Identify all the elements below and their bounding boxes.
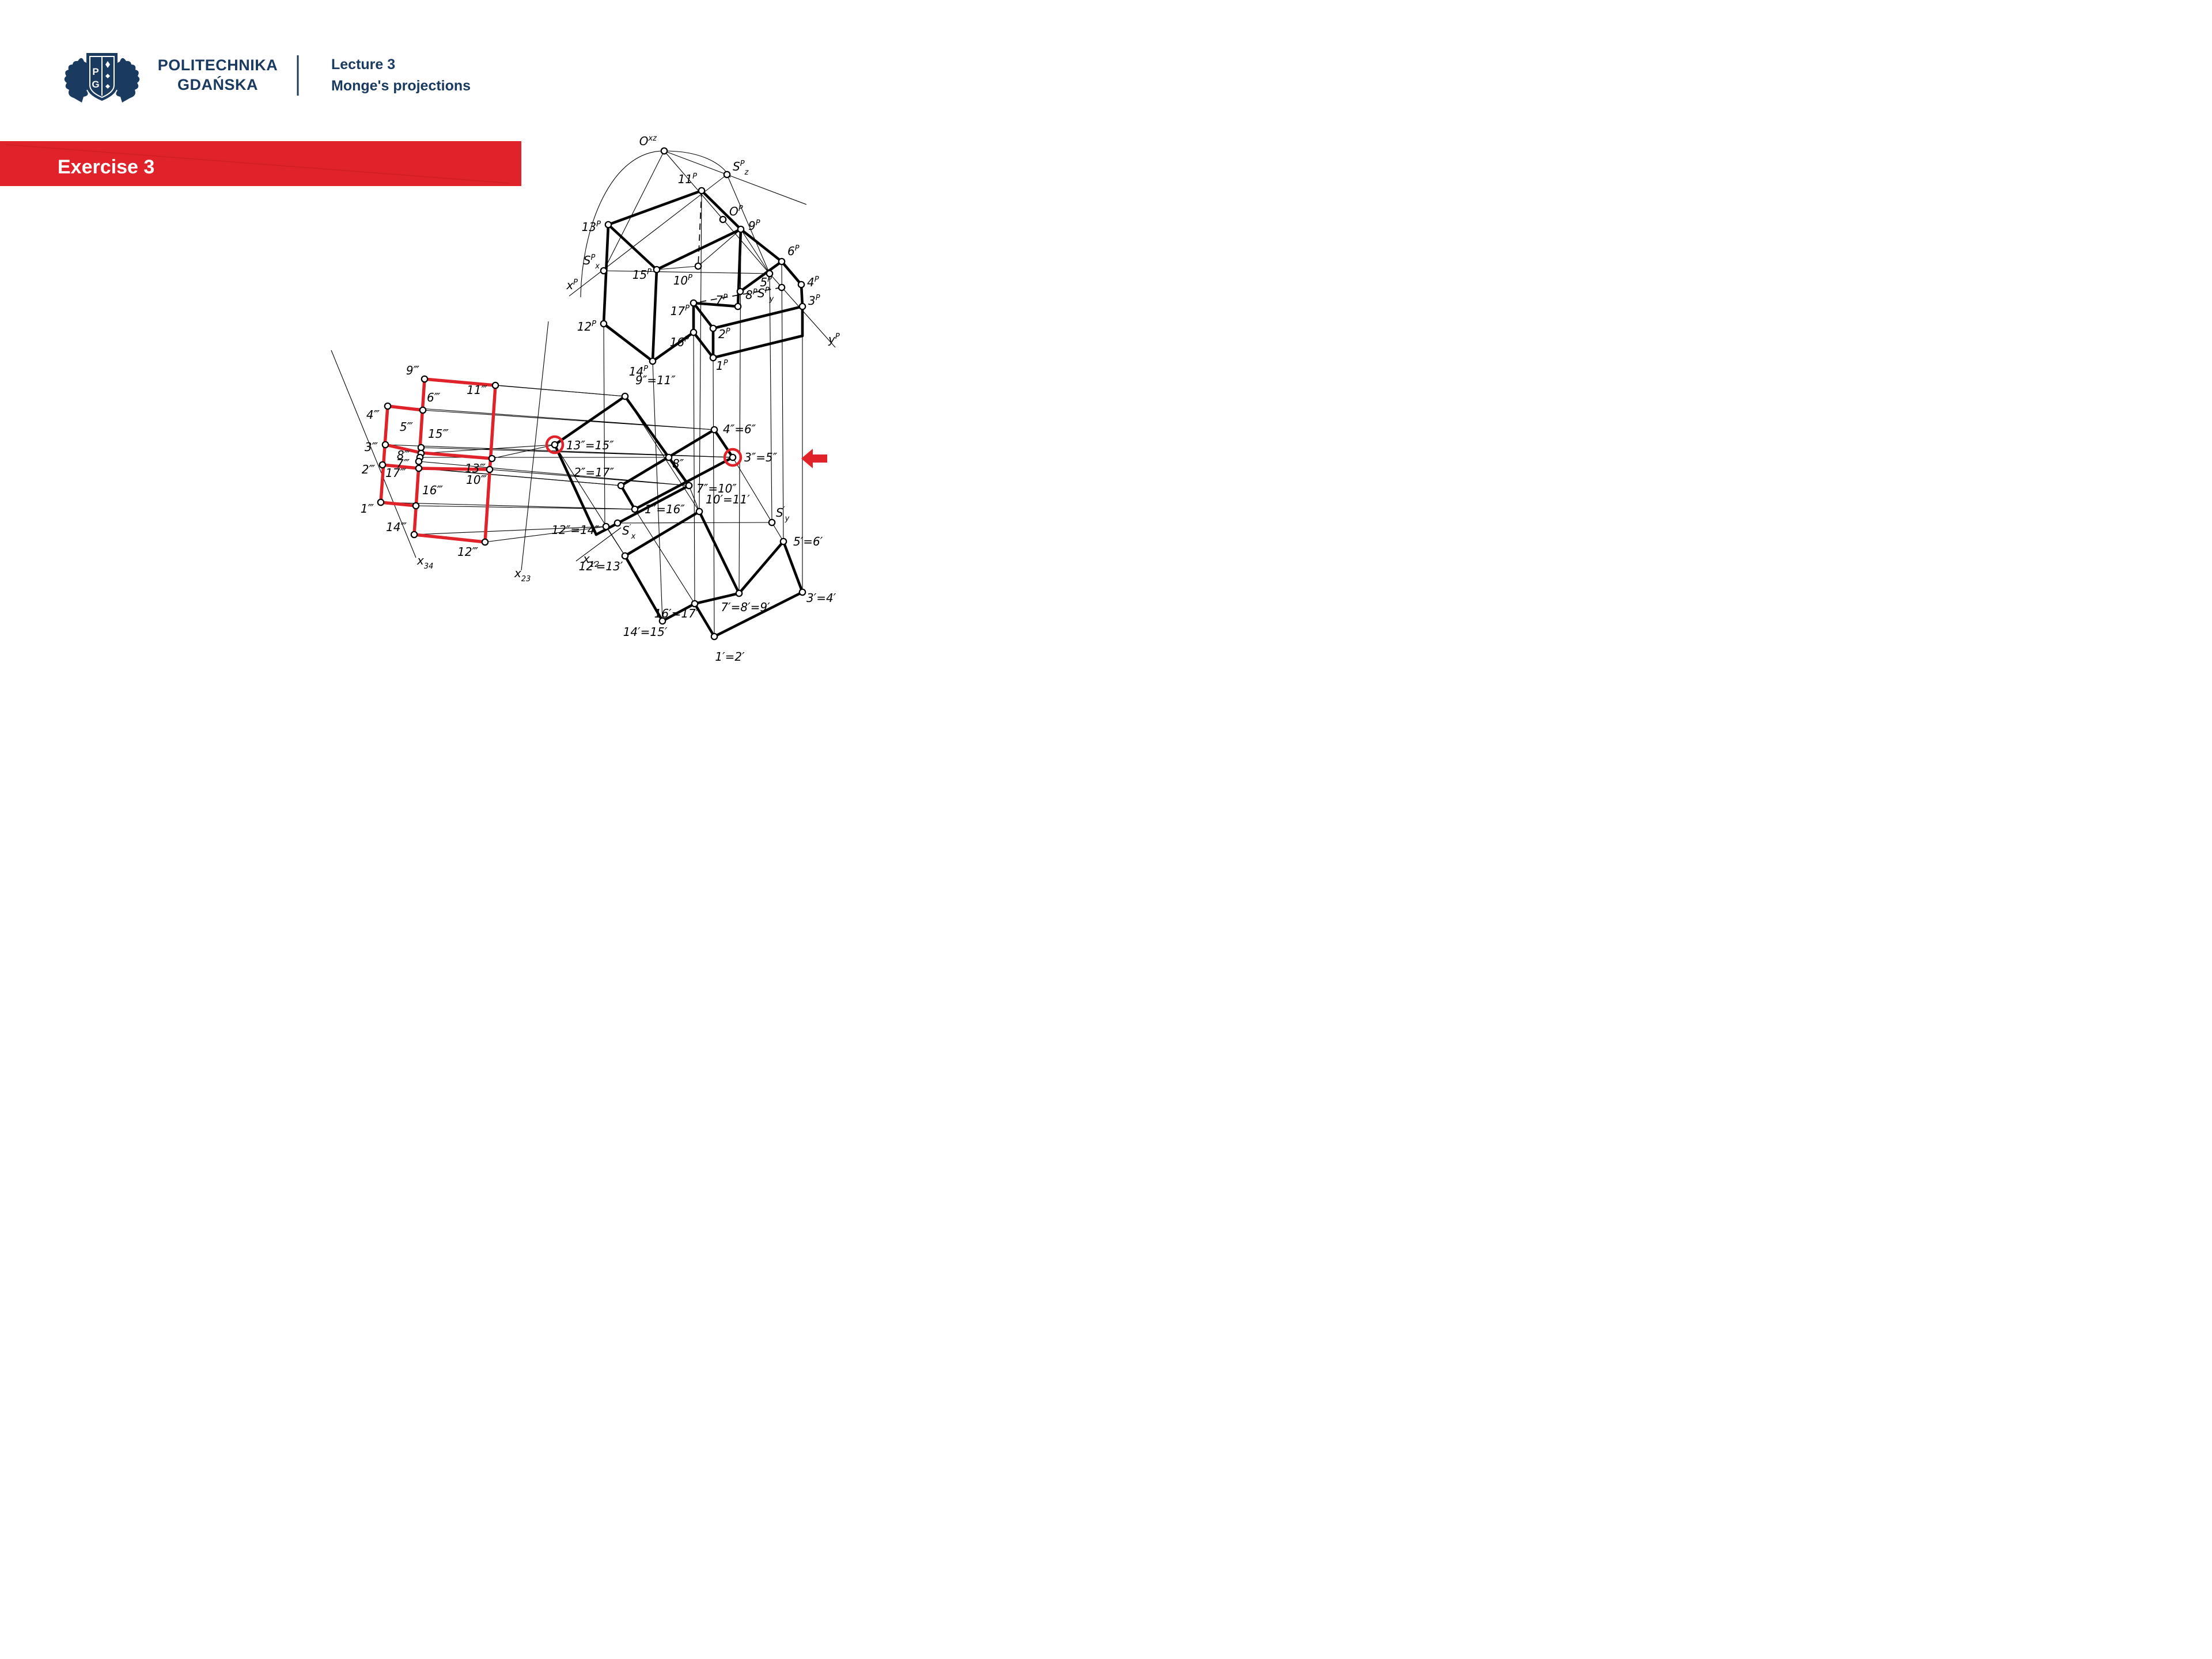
- point-label: 9‴: [406, 363, 420, 377]
- point-label: 12″=14″: [551, 523, 599, 537]
- construction-line: [664, 151, 770, 274]
- point-label: 6‴: [427, 391, 441, 404]
- point-marker: [686, 483, 692, 488]
- point-marker: [603, 524, 609, 529]
- logo-letter-g: G: [92, 79, 99, 90]
- point-marker: [798, 282, 804, 287]
- point-marker: [622, 393, 628, 399]
- point-label: 1‴: [361, 502, 374, 516]
- point-marker: [735, 304, 741, 309]
- solid-edge: [621, 486, 635, 509]
- point-marker: [769, 520, 775, 525]
- point-marker: [696, 509, 702, 514]
- point-label: 2″=17″: [574, 465, 614, 479]
- point-label: 13″=15″: [566, 438, 614, 452]
- point-marker: [618, 483, 624, 488]
- construction-line: [423, 410, 714, 430]
- solid-edge: [694, 332, 713, 358]
- point-label: 8P: [745, 288, 757, 302]
- point-label: 3P: [808, 294, 820, 308]
- solid-edge: [713, 306, 802, 328]
- point-label: 16′=17′: [654, 607, 699, 620]
- point-marker: [605, 222, 611, 228]
- point-marker: [413, 503, 419, 509]
- point-label: 11P: [678, 172, 697, 186]
- point-label: 4P: [807, 275, 819, 289]
- header: P G POLITECHNIKA GDAŃSKA Lecture 3 Monge…: [65, 53, 471, 103]
- point-labels: OxzSPz11POP9P13P6PSPx15P10P8PSPy5P4P3P12…: [361, 134, 840, 664]
- point-marker: [654, 267, 660, 272]
- point-marker: [601, 321, 607, 327]
- point-marker: [666, 454, 672, 460]
- construction-line: [419, 461, 689, 486]
- point-label: 15‴: [428, 427, 449, 441]
- point-marker: [695, 263, 701, 269]
- point-label: 5′=6′: [793, 535, 823, 548]
- point-label: 9P: [748, 219, 760, 233]
- point-label: 5‴: [400, 420, 414, 434]
- point-marker: [800, 589, 805, 595]
- point-marker: [730, 454, 736, 460]
- red-grid-edge: [414, 535, 485, 542]
- solid-edge: [608, 191, 702, 225]
- point-marker: [380, 462, 385, 468]
- point-label: 14′=15′: [623, 625, 668, 639]
- point-label: 5P: [760, 275, 772, 289]
- construction-line: [604, 324, 605, 527]
- point-label: 10′=11′: [706, 493, 750, 506]
- point-marker: [601, 268, 607, 274]
- construction-line: [653, 361, 662, 621]
- construction-line: [521, 321, 548, 570]
- point-marker: [632, 506, 638, 512]
- red-grid-edge: [381, 406, 388, 502]
- solid-edge: [653, 270, 657, 361]
- point-marker: [711, 634, 717, 639]
- point-label: yP: [828, 332, 840, 346]
- point-label: x34: [416, 554, 433, 571]
- construction-line: [741, 229, 770, 274]
- point-label: 12‴: [457, 545, 478, 559]
- point-label: 11‴: [467, 383, 487, 397]
- point-marker: [382, 442, 388, 448]
- point-label: 4″=6″: [723, 422, 756, 436]
- point-marker: [378, 499, 384, 505]
- point-label: 8″: [672, 457, 684, 471]
- banner-title: Exercise 3: [58, 156, 154, 178]
- lecture-subtitle: Monge's projections: [331, 78, 471, 94]
- point-marker: [418, 445, 424, 450]
- point-marker: [615, 520, 620, 526]
- point-marker: [482, 539, 488, 545]
- point-label: S′x: [622, 524, 636, 541]
- point-marker: [692, 601, 698, 607]
- point-marker: [710, 325, 716, 331]
- point-marker: [779, 285, 785, 290]
- point-marker: [661, 148, 667, 154]
- point-label: xP: [566, 278, 578, 292]
- point-label: Oxz: [639, 134, 657, 148]
- point-marker: [493, 382, 498, 388]
- point-marker: [691, 300, 696, 306]
- point-label: 1″=16″: [645, 502, 685, 516]
- point-marker: [781, 539, 786, 544]
- point-label: 16P: [670, 335, 689, 349]
- point-marker: [710, 355, 716, 361]
- point-marker: [736, 590, 742, 596]
- lecture-slide: P G POLITECHNIKA GDAŃSKA Lecture 3 Monge…: [0, 0, 891, 668]
- brand-line2: GDAŃSKA: [177, 75, 258, 93]
- point-marker: [737, 289, 743, 294]
- point-marker: [720, 217, 726, 222]
- point-label: 7′=8′=9′: [721, 600, 770, 614]
- point-marker: [738, 226, 744, 232]
- point-label: S′y: [776, 506, 790, 523]
- monge-projection-diagram: OxzSPz11POP9P13P6PSPx15P10P8PSPy5P4P3P12…: [331, 134, 840, 664]
- point-marker: [691, 329, 696, 335]
- point-label: x23: [514, 566, 531, 584]
- construction-line: [694, 332, 695, 604]
- solid-edge: [604, 324, 653, 361]
- point-label: 3‴: [365, 440, 378, 454]
- point-label: 10‴: [466, 473, 487, 487]
- construction-line: [770, 274, 772, 522]
- logo-letter-p: P: [92, 66, 99, 77]
- point-marker: [699, 188, 704, 194]
- point-label: 17P: [671, 304, 690, 318]
- point-marker: [385, 403, 391, 409]
- solid-edge: [694, 303, 713, 328]
- point-marker: [422, 376, 427, 382]
- point-label: 2P: [718, 327, 730, 341]
- solid-edge: [714, 592, 802, 637]
- solid-edge: [739, 541, 783, 593]
- point-marker: [779, 259, 785, 264]
- solid-edge: [699, 512, 739, 593]
- solid-edge: [782, 262, 801, 285]
- point-marker: [724, 172, 730, 177]
- point-label: 14‴: [386, 520, 407, 534]
- point-label: 1′=2′: [715, 650, 745, 664]
- solid-edge: [783, 541, 802, 592]
- point-label: 15P: [632, 268, 652, 282]
- solid-edge: [741, 229, 782, 262]
- point-marker: [622, 553, 628, 559]
- point-marker: [420, 407, 426, 413]
- point-marker: [800, 304, 805, 309]
- point-marker: [552, 442, 558, 448]
- point-label: 4‴: [366, 408, 380, 422]
- point-label: 3″=5″: [744, 450, 778, 464]
- construction-line: [555, 445, 625, 556]
- point-label: 13P: [582, 220, 601, 234]
- point-marker: [416, 459, 422, 464]
- red-grid-edge: [388, 406, 423, 410]
- point-label: 17‴: [385, 466, 406, 480]
- construction-line: [495, 385, 625, 396]
- point-marker: [489, 456, 495, 461]
- point-marker: [416, 465, 422, 471]
- construction-line: [618, 522, 772, 523]
- red-grid-edge: [485, 385, 495, 542]
- pg-logo: P G: [65, 53, 140, 103]
- point-label: 3′=4′: [806, 591, 836, 605]
- slide-canvas: P G POLITECHNIKA GDAŃSKA Lecture 3 Monge…: [0, 0, 891, 668]
- point-label: 9″=11″: [635, 373, 676, 387]
- point-label: SPx: [584, 253, 600, 271]
- highlight-arrow-icon: [801, 449, 827, 468]
- point-label: 10P: [673, 274, 692, 287]
- construction-line: [604, 151, 664, 271]
- point-label: 12P: [577, 320, 596, 334]
- point-marker: [650, 358, 656, 364]
- point-label: 1P: [716, 359, 728, 373]
- brand-line1: POLITECHNIKA: [158, 56, 278, 74]
- lecture-title: Lecture 3: [331, 56, 395, 73]
- point-label: SPz: [733, 160, 749, 177]
- point-label: OP: [729, 204, 743, 218]
- point-marker: [411, 532, 417, 537]
- point-marker: [487, 467, 493, 472]
- construction-line: [782, 262, 783, 541]
- point-label: 2‴: [362, 463, 376, 476]
- exercise-banner: Exercise 3: [0, 141, 521, 186]
- solid-edge: [555, 445, 596, 535]
- point-marker: [711, 427, 717, 433]
- solid-edge: [713, 336, 802, 358]
- solid-edge: [555, 396, 625, 445]
- point-label: 6P: [787, 244, 800, 258]
- solid-edge: [625, 512, 699, 556]
- point-label: 16‴: [422, 483, 443, 497]
